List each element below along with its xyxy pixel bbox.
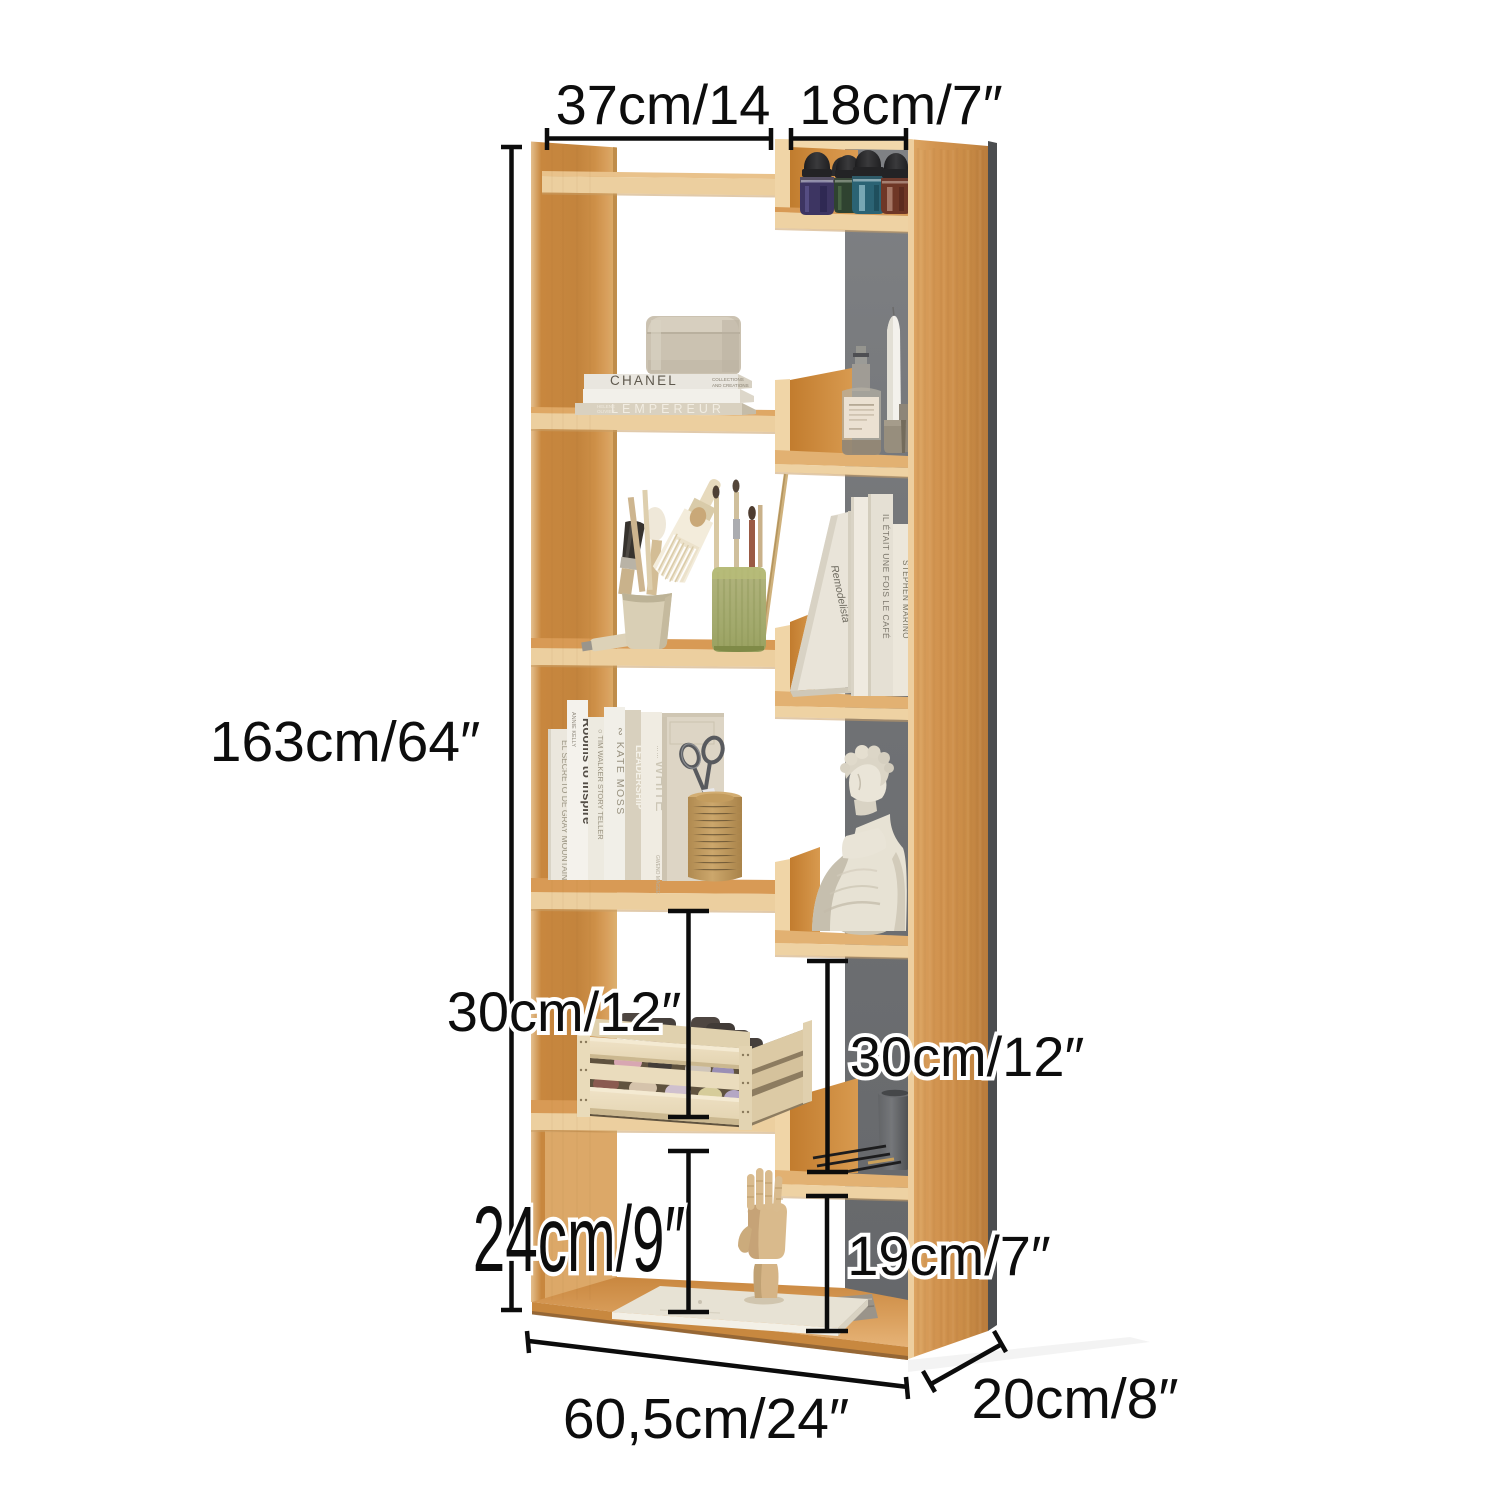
svg-text:OLIVIER: OLIVIER: [597, 409, 616, 414]
svg-text:19cm/7″: 19cm/7″: [847, 1224, 1050, 1287]
svg-text:○ TIM WALKER STORY TELLER: ○ TIM WALKER STORY TELLER: [596, 729, 605, 840]
svg-text:60,5cm/24″: 60,5cm/24″: [563, 1387, 849, 1451]
svg-text:18cm/7″: 18cm/7″: [799, 73, 1002, 136]
svg-text:LEMPEREUR: LEMPEREUR: [611, 402, 725, 416]
svg-text:GWENO MAGEE: GWENO MAGEE: [654, 855, 660, 895]
svg-text:30cm/12″: 30cm/12″: [447, 980, 682, 1043]
svg-text:30cm/12″: 30cm/12″: [850, 1025, 1085, 1088]
svg-text:CHANEL: CHANEL: [610, 373, 678, 388]
svg-text:20cm/8″: 20cm/8″: [971, 1367, 1178, 1431]
svg-text:37cm/14: 37cm/14: [556, 73, 771, 136]
svg-text:24cm/9″: 24cm/9″: [473, 1189, 686, 1292]
svg-text:COLLECTIONS: COLLECTIONS: [712, 377, 744, 382]
svg-text:163cm/64″: 163cm/64″: [210, 710, 481, 774]
svg-text:∾ KATE MOSS: ∾ KATE MOSS: [614, 727, 626, 816]
svg-text:ANNIE KELLY: ANNIE KELLY: [570, 712, 576, 747]
svg-text:……: ……: [655, 745, 662, 759]
svg-text:AND CREATIONS: AND CREATIONS: [712, 383, 749, 388]
svg-text:IL ÉTAIT UNE FOIS LE CAFÉ: IL ÉTAIT UNE FOIS LE CAFÉ: [881, 514, 891, 639]
